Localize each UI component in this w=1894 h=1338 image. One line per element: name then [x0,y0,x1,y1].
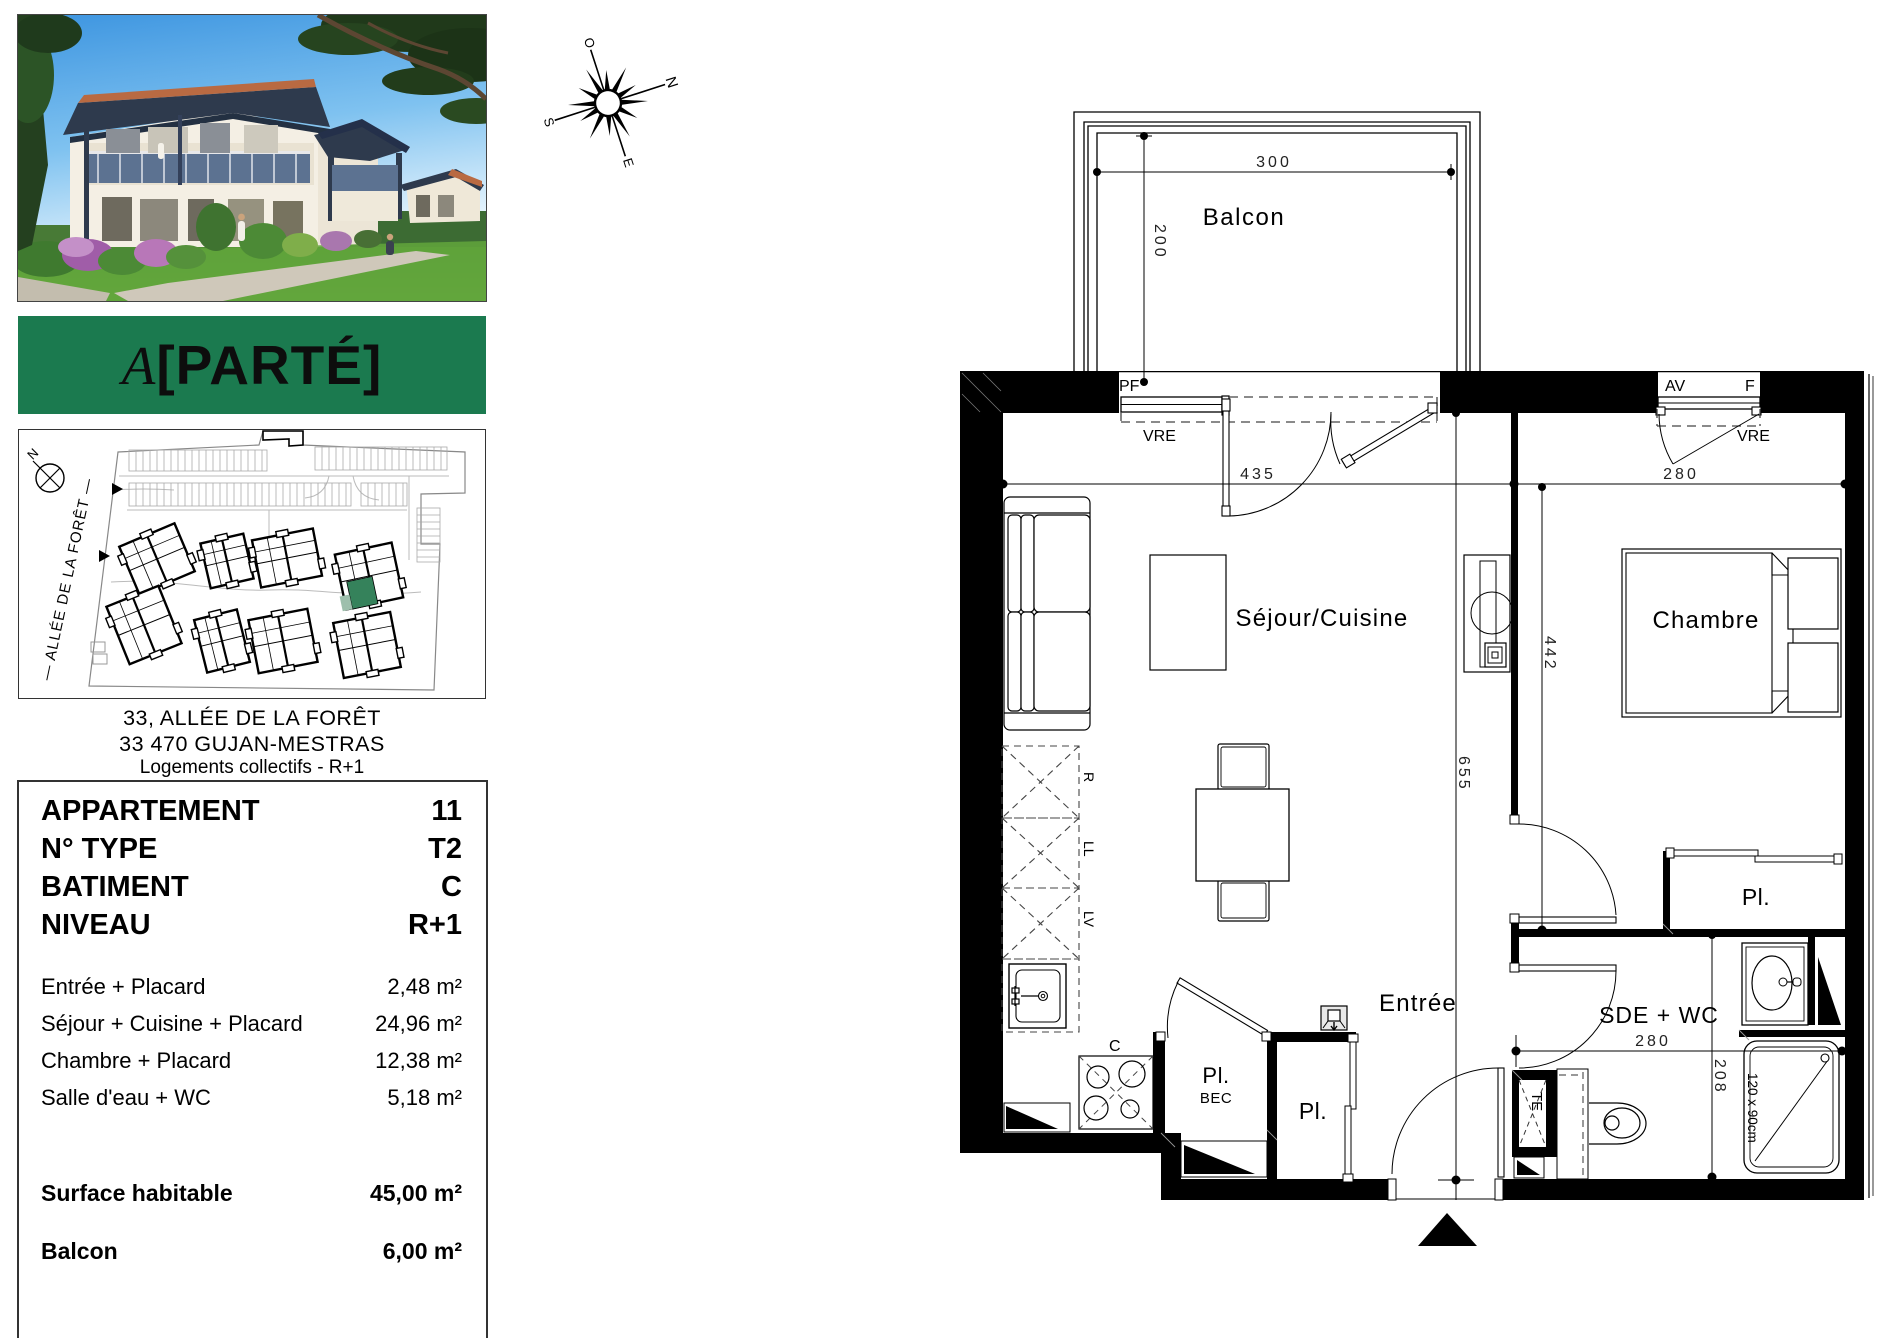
svg-text:Balcon: Balcon [1203,204,1285,231]
svg-text:— ALLÉE DE LA FORÊT —: — ALLÉE DE LA FORÊT — [38,476,98,682]
svg-text:280: 280 [1663,466,1699,483]
svg-text:435: 435 [1240,466,1276,483]
svg-text:280: 280 [1635,1033,1671,1050]
svg-text:F: F [1745,378,1755,395]
svg-text:Pl.: Pl. [1299,1098,1327,1124]
svg-text:VRE: VRE [1143,428,1176,445]
svg-text:N: N [24,445,41,462]
svg-text:120 x 90cm: 120 x 90cm [1745,1073,1760,1143]
svg-text:Entrée: Entrée [1379,990,1457,1017]
svg-text:Chambre: Chambre [1652,607,1759,634]
svg-text:R: R [1081,772,1097,782]
svg-text:VRE: VRE [1737,428,1770,445]
svg-text:SDE + WC: SDE + WC [1599,1002,1719,1028]
svg-text:Pl.: Pl. [1742,884,1770,910]
svg-text:200: 200 [1151,224,1168,260]
svg-text:Pl.: Pl. [1202,1063,1229,1088]
svg-text:TE: TE [1528,1092,1545,1111]
svg-text:PF: PF [1119,378,1140,395]
svg-text:O: O [581,36,598,50]
svg-text:N: N [662,75,682,91]
svg-text:LV: LV [1081,911,1097,928]
svg-text:208: 208 [1711,1059,1728,1095]
svg-text:C: C [1109,1038,1121,1055]
svg-text:442: 442 [1541,636,1558,672]
svg-text:Séjour/Cuisine: Séjour/Cuisine [1236,605,1409,632]
svg-text:BEC: BEC [1200,1090,1232,1107]
svg-text:655: 655 [1455,756,1472,792]
svg-text:LL: LL [1081,841,1097,857]
svg-text:S: S [541,116,558,129]
svg-text:300: 300 [1256,154,1292,171]
svg-text:AV: AV [1665,378,1685,395]
svg-text:E: E [620,156,637,169]
